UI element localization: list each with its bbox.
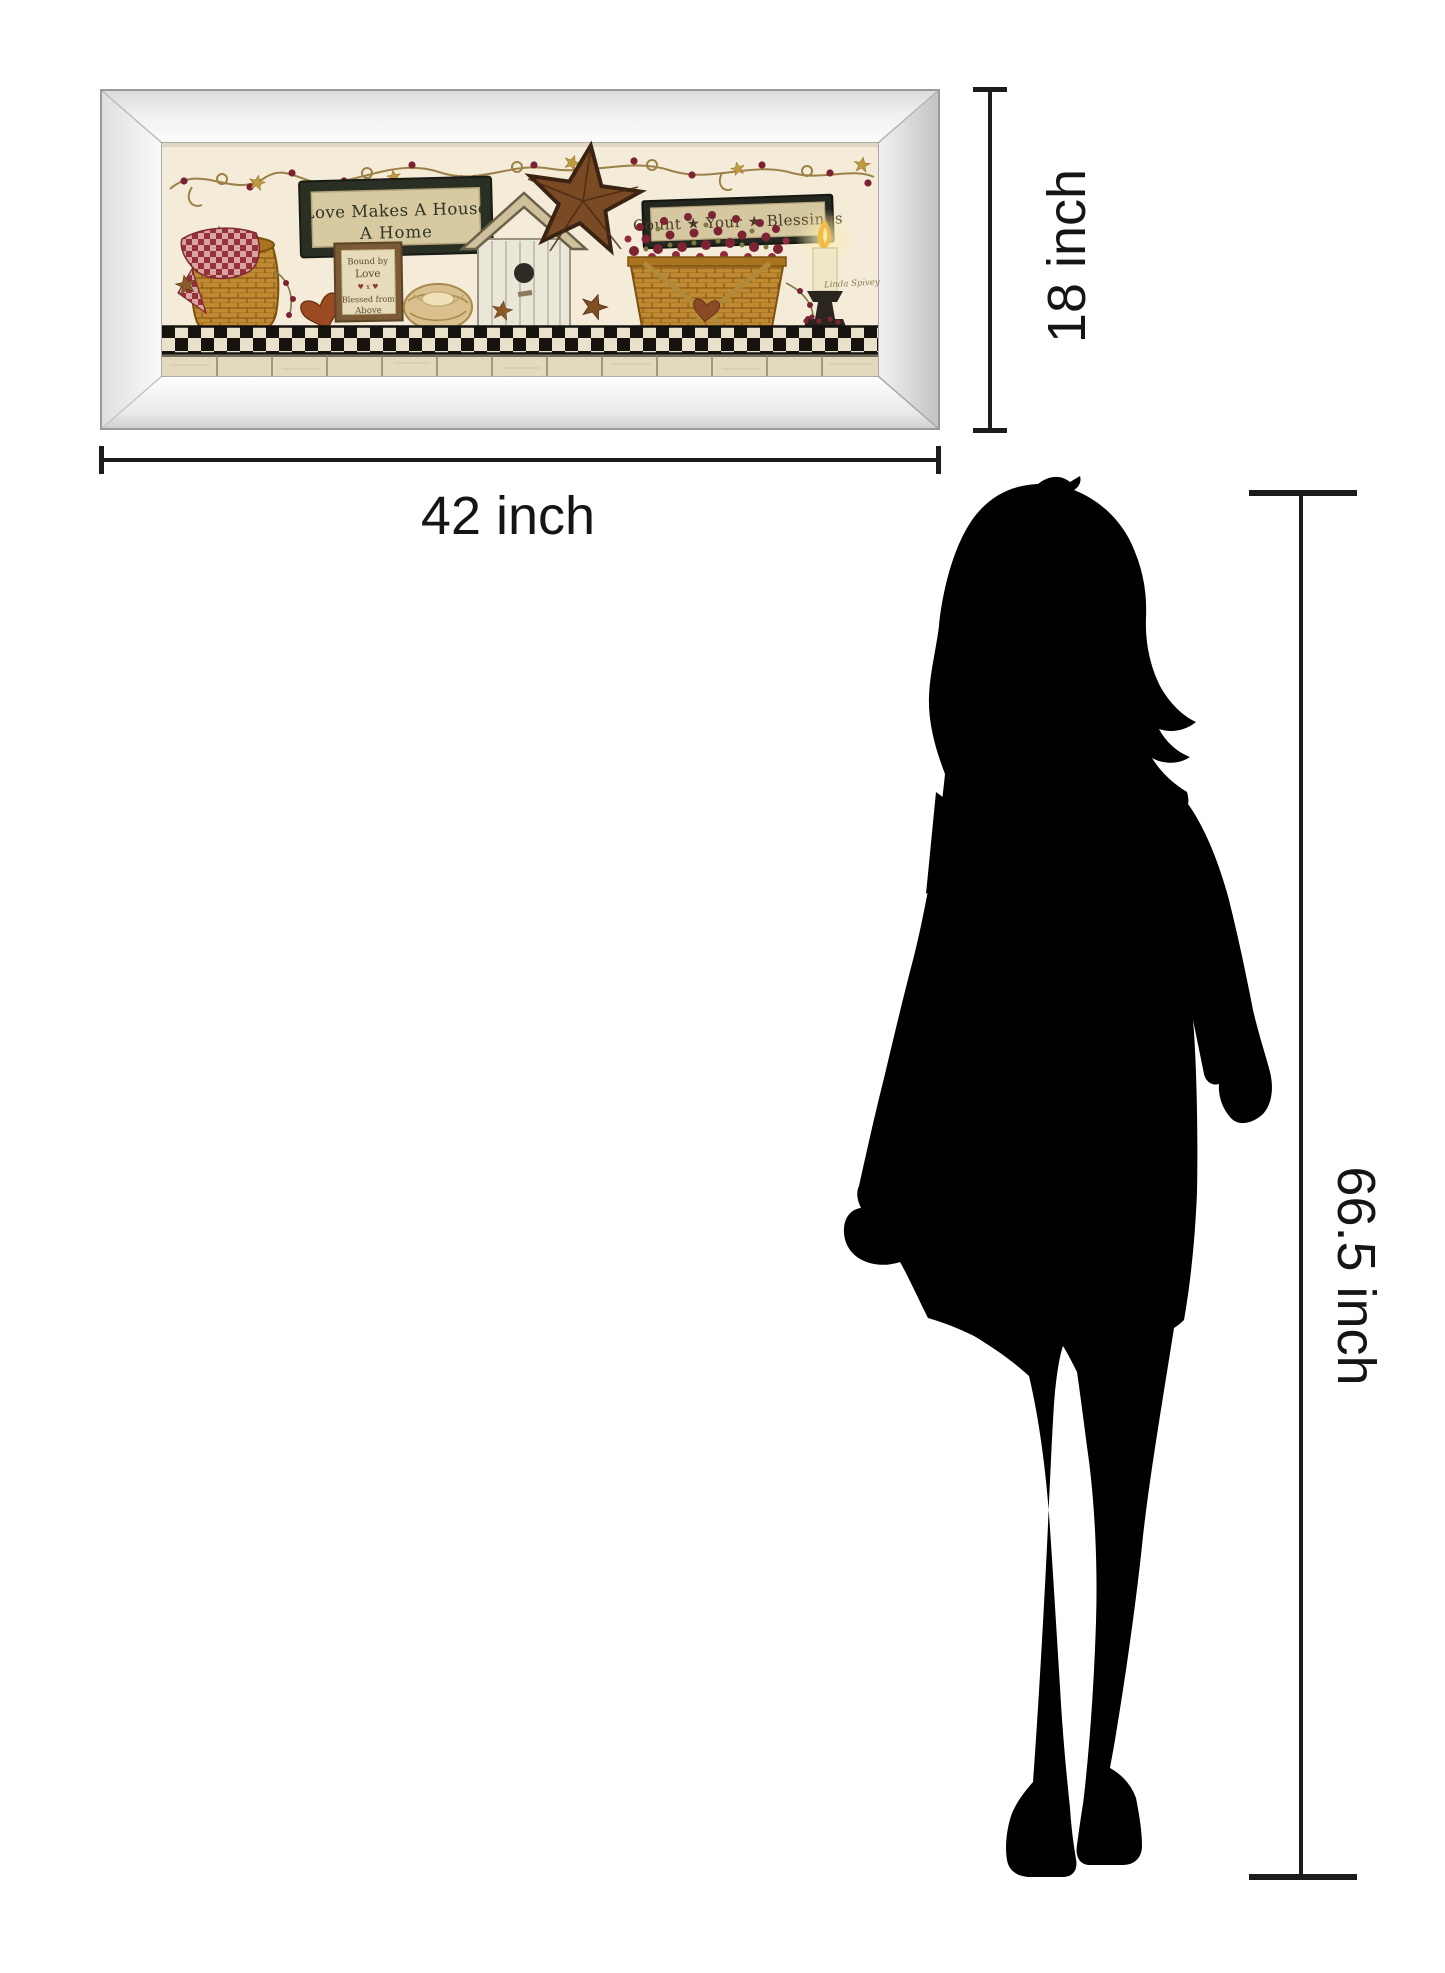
birdhouse-hole <box>514 263 534 283</box>
product-dimension-diagram: Love Makes A House A Home Bound by Love … <box>0 0 1445 1973</box>
height-dimension-label: 18 inch <box>1036 169 1098 343</box>
person-height-dimension-label: 66.5 inch <box>1325 1166 1387 1385</box>
bound-sign: Bound by Love ♥ x ♥ Blessed from Above <box>334 242 402 321</box>
height-dimension-cap-bottom <box>973 428 1007 433</box>
woman-silhouette-body <box>844 476 1272 1877</box>
width-dimension-tick-right <box>936 446 941 474</box>
love-sign-line2: A Home <box>359 222 433 243</box>
shelf-planks <box>162 355 878 376</box>
bound-sign-line5: Above <box>354 306 382 316</box>
bound-sign-line2: Love <box>355 268 381 280</box>
width-dimension-label: 42 inch <box>421 485 595 547</box>
person-height-dimension-line <box>1299 493 1303 1877</box>
framed-art: Love Makes A House A Home Bound by Love … <box>100 89 940 430</box>
width-dimension-tick-left <box>99 446 104 474</box>
height-dimension-line <box>988 89 992 430</box>
height-dimension-cap-top <box>973 87 1007 92</box>
bound-sign-line1: Bound by <box>347 257 388 268</box>
woman-silhouette <box>842 474 1274 1884</box>
art-print: Love Makes A House A Home Bound by Love … <box>162 138 880 376</box>
width-dimension-line <box>100 458 940 462</box>
bound-sign-line4: Blessed from <box>342 295 396 305</box>
shelf-checkerboard <box>162 327 878 354</box>
bound-sign-line3: ♥ x ♥ <box>358 283 379 291</box>
bird-nest <box>404 284 472 330</box>
